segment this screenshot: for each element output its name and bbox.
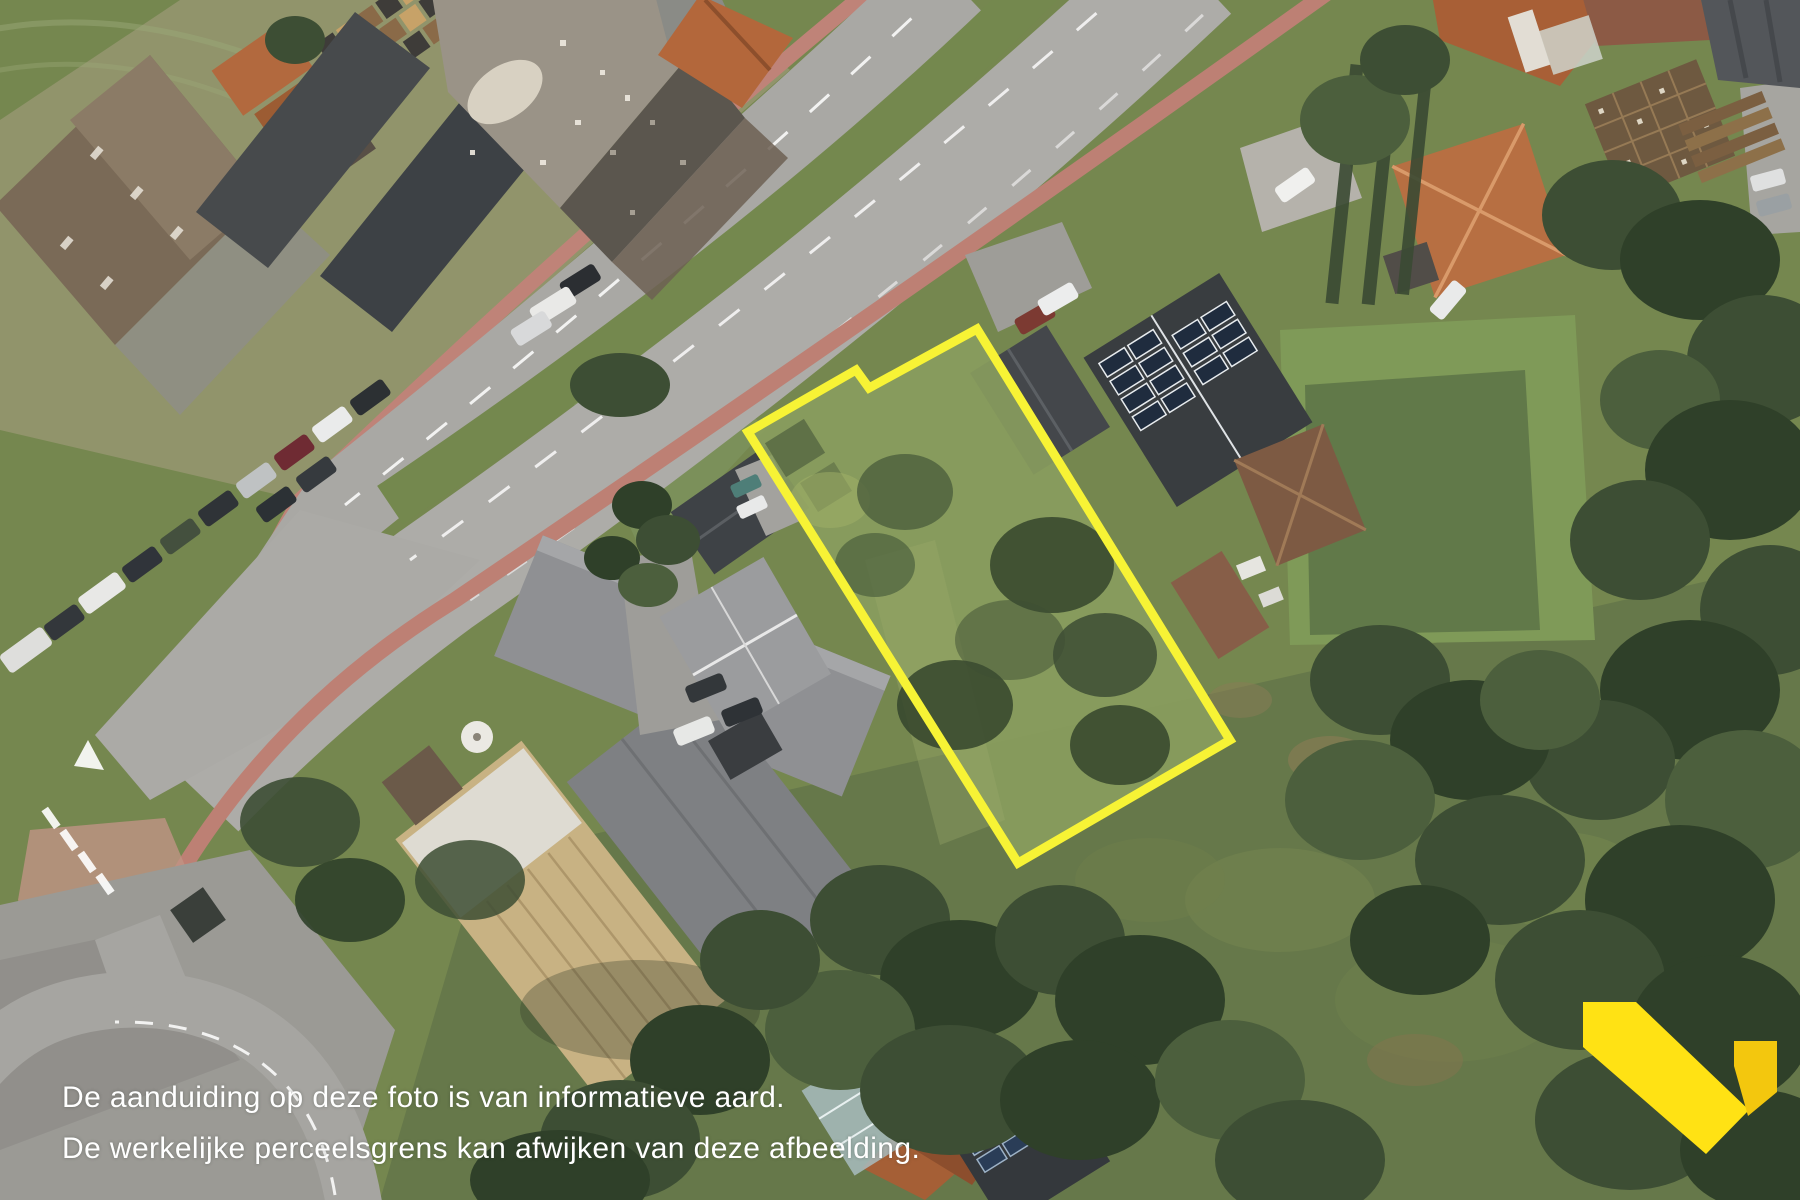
disclaimer-line-2: De werkelijke perceelsgrens kan afwijken… xyxy=(62,1123,920,1174)
aerial-photo-canvas xyxy=(0,0,1800,1200)
disclaimer-line-1: De aanduiding op deze foto is van inform… xyxy=(62,1072,920,1123)
aerial-photo: De aanduiding op deze foto is van inform… xyxy=(0,0,1800,1200)
disclaimer: De aanduiding op deze foto is van inform… xyxy=(62,1072,920,1174)
